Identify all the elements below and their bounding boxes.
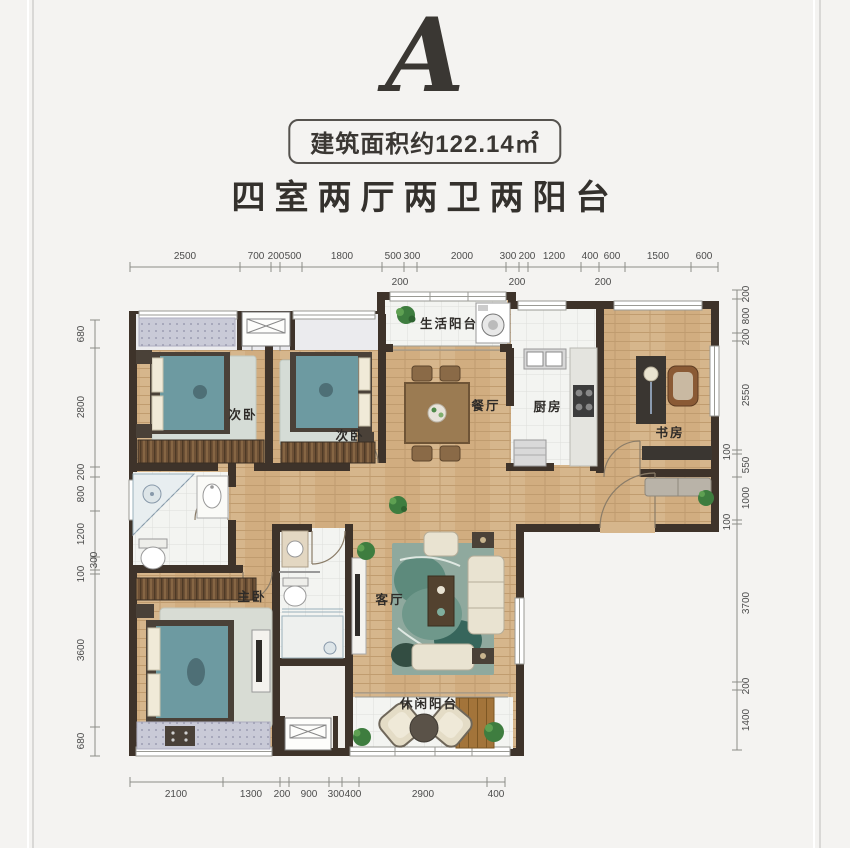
dim-label: 300 bbox=[500, 251, 517, 262]
dim-sublabel: 200 bbox=[509, 277, 526, 288]
toilet-icon bbox=[283, 578, 308, 606]
dim-label: 500 bbox=[385, 251, 402, 262]
dim-label: 400 bbox=[488, 789, 505, 800]
dim-label: 300 bbox=[89, 551, 100, 568]
bay-cushion bbox=[139, 318, 235, 346]
dim-label: 1800 bbox=[331, 251, 354, 262]
dim-label: 200 bbox=[741, 285, 752, 302]
dim-label: 400 bbox=[345, 789, 362, 800]
room-label-dining: 餐厅 bbox=[470, 398, 500, 413]
dim-label: 3700 bbox=[741, 591, 752, 614]
dim-label: 2000 bbox=[451, 251, 474, 262]
shower-icon bbox=[282, 609, 343, 658]
nightstand-icon bbox=[136, 604, 154, 618]
window-kitchen bbox=[518, 301, 566, 310]
toilet-icon bbox=[139, 539, 167, 569]
dim-label: 500 bbox=[285, 251, 302, 262]
dimension-labels-top: 2500 700 200 500 1800 500 300 2000 300 2… bbox=[174, 251, 713, 288]
dim-sublabel: 200 bbox=[392, 277, 409, 288]
window-study-top bbox=[614, 301, 702, 310]
bookcase-icon bbox=[642, 446, 712, 460]
plant-icon bbox=[389, 496, 407, 514]
entry-door-opening bbox=[600, 522, 655, 533]
dim-label: 1300 bbox=[240, 789, 263, 800]
dim-label: 800 bbox=[76, 485, 87, 502]
window-bedroom-right-bay bbox=[293, 311, 375, 319]
fridge-icon bbox=[514, 440, 546, 466]
plant-icon bbox=[353, 728, 371, 746]
dim-label: 200 bbox=[741, 677, 752, 694]
coffee-table-icon bbox=[428, 576, 454, 626]
dim-label: 300 bbox=[328, 789, 345, 800]
ac-unit-top-icon bbox=[242, 312, 290, 351]
dim-label: 680 bbox=[76, 325, 87, 342]
room-label-bedroom-right: 次卧 bbox=[335, 428, 364, 443]
dim-label: 900 bbox=[301, 789, 318, 800]
dimension-labels-left: 680 2800 200 800 1200 300 100 3600 680 bbox=[76, 325, 100, 749]
dim-label: 800 bbox=[741, 307, 752, 324]
bedroom-right: 次卧 bbox=[280, 352, 375, 463]
nightstand-icon bbox=[136, 424, 152, 438]
dim-label: 1400 bbox=[741, 708, 752, 731]
window-living-right bbox=[515, 598, 524, 664]
dim-label: 700 bbox=[248, 251, 265, 262]
window-life-balcony bbox=[390, 292, 506, 301]
ac-unit-bottom-icon bbox=[285, 718, 331, 750]
dim-label: 2100 bbox=[165, 789, 188, 800]
bed-icon bbox=[150, 352, 230, 434]
room-label-kitchen: 厨房 bbox=[533, 399, 562, 414]
dim-sublabel: 200 bbox=[595, 277, 612, 288]
dim-label: 100 bbox=[722, 513, 733, 530]
wardrobe-icon bbox=[281, 442, 375, 463]
dim-label: 200 bbox=[76, 463, 87, 480]
nightstand-icon bbox=[136, 350, 152, 364]
round-table-icon bbox=[410, 714, 438, 742]
tv-unit-icon bbox=[352, 558, 366, 654]
dim-label: 600 bbox=[604, 251, 621, 262]
plant-icon bbox=[484, 722, 504, 742]
dim-label: 2900 bbox=[412, 789, 435, 800]
room-label-study: 书房 bbox=[655, 425, 684, 440]
dim-label: 600 bbox=[696, 251, 713, 262]
floor-plan-canvas: 2500 700 200 500 1800 500 300 2000 300 2… bbox=[0, 0, 850, 848]
dim-label: 1000 bbox=[741, 486, 752, 509]
window-study-right bbox=[710, 346, 719, 416]
desk-icon bbox=[636, 356, 666, 424]
vanity-icon bbox=[282, 531, 308, 567]
bed-icon bbox=[146, 620, 234, 724]
dim-label: 300 bbox=[404, 251, 421, 262]
dim-label: 200 bbox=[274, 789, 291, 800]
dim-label: 100 bbox=[76, 565, 87, 582]
desk-chair-icon bbox=[668, 366, 698, 406]
dim-label: 1500 bbox=[647, 251, 670, 262]
room-label-living: 客厅 bbox=[374, 592, 404, 607]
dim-label: 2550 bbox=[741, 383, 752, 406]
dim-label: 3600 bbox=[76, 638, 87, 661]
vanity-icon bbox=[197, 476, 228, 518]
dim-label: 1200 bbox=[543, 251, 566, 262]
bay-planter bbox=[165, 726, 195, 746]
stove-icon bbox=[573, 385, 594, 417]
wardrobe-icon bbox=[138, 440, 264, 463]
dim-label: 1200 bbox=[76, 522, 87, 545]
bed-icon bbox=[290, 352, 372, 432]
plant-icon bbox=[357, 542, 375, 560]
dim-label: 2800 bbox=[76, 395, 87, 418]
bay-cushion bbox=[137, 722, 270, 749]
dim-label: 200 bbox=[268, 251, 285, 262]
tv-stand-icon bbox=[252, 630, 270, 692]
plant-icon bbox=[698, 490, 714, 506]
dim-label: 400 bbox=[582, 251, 599, 262]
dim-label: 680 bbox=[76, 732, 87, 749]
washing-machine-icon bbox=[476, 303, 510, 343]
dim-label: 200 bbox=[741, 328, 752, 345]
dim-label: 100 bbox=[722, 443, 733, 460]
room-label-life-balcony: 生活阳台 bbox=[420, 316, 478, 331]
sink-icon bbox=[524, 349, 566, 369]
room-label-leisure-balcony: 休闲阳台 bbox=[399, 696, 458, 711]
dim-label: 200 bbox=[519, 251, 536, 262]
floorplan-page: A 建筑面积约122.14㎡ 四室两厅两卫两阳台 bbox=[0, 0, 850, 848]
room-label-bedroom-left: 次卧 bbox=[228, 407, 257, 422]
room-label-master: 主卧 bbox=[237, 589, 266, 604]
dim-label: 550 bbox=[741, 456, 752, 473]
dim-label: 2500 bbox=[174, 251, 197, 262]
dimension-labels-bottom: 2100 1300 200 900 300 400 2900 400 bbox=[165, 789, 505, 800]
